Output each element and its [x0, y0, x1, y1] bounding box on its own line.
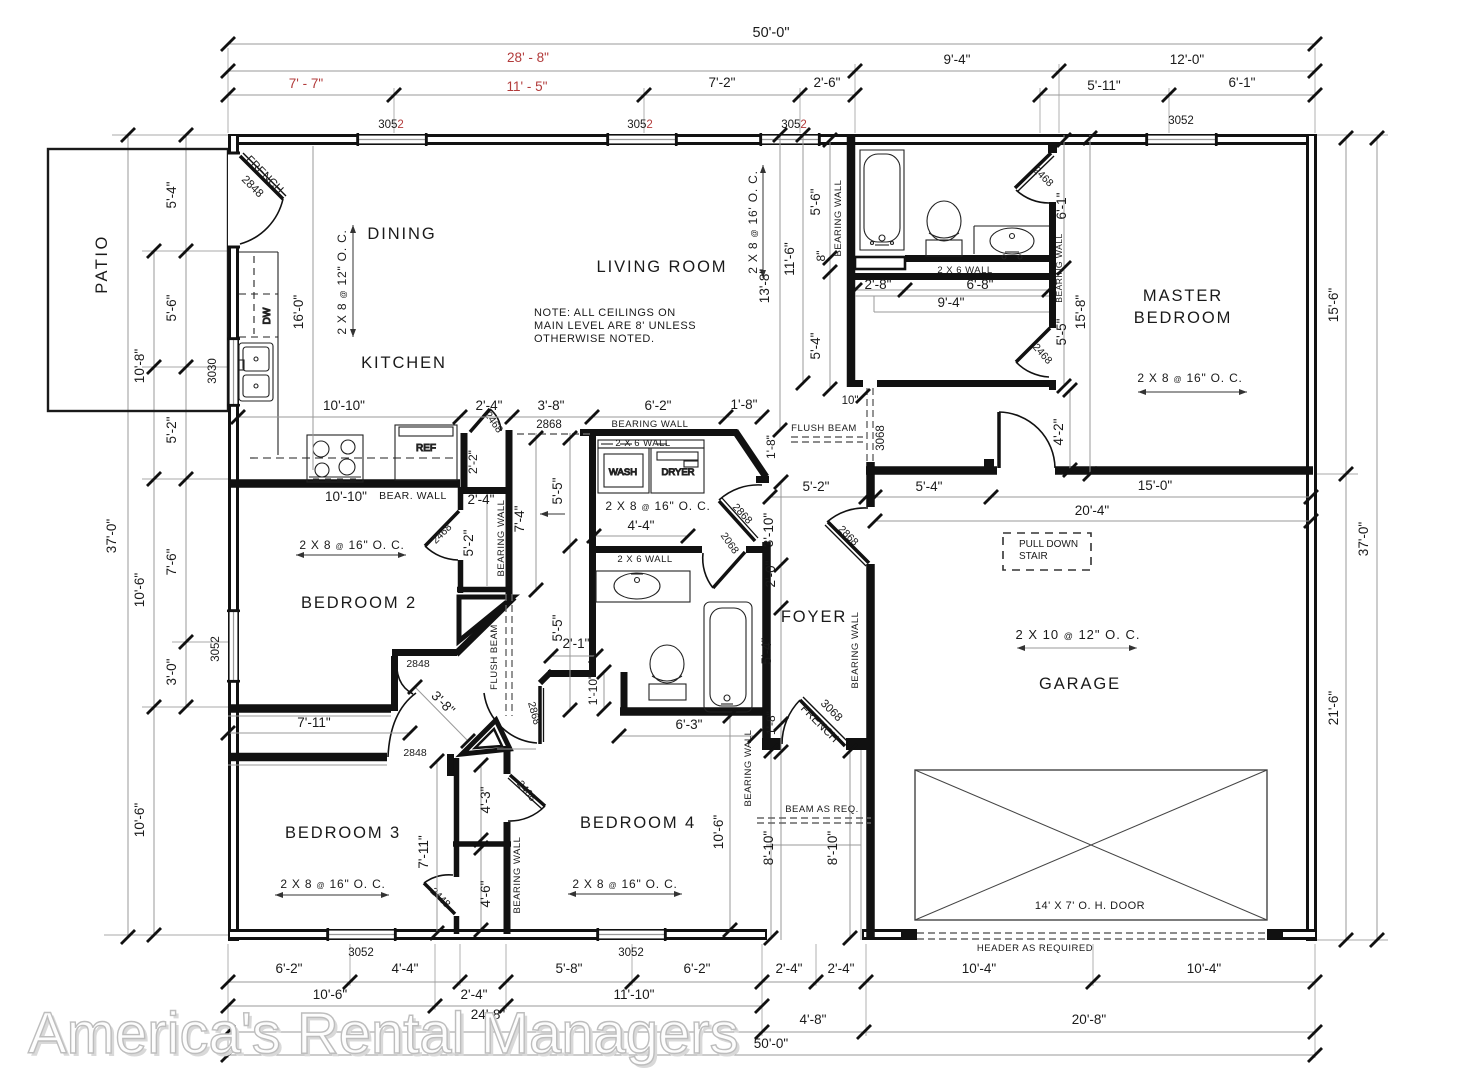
svg-text:15'-6": 15'-6": [1326, 288, 1341, 323]
svg-text:1'-8": 1'-8": [764, 711, 778, 735]
svg-text:8": 8": [814, 251, 828, 262]
svg-text:LIVING ROOM: LIVING ROOM: [597, 258, 728, 276]
svg-text:DW: DW: [262, 307, 273, 324]
svg-text:KITCHEN: KITCHEN: [361, 354, 447, 372]
svg-text:2'-4": 2'-4": [828, 961, 855, 976]
svg-text:3068: 3068: [875, 425, 887, 451]
svg-text:2 X 6 WALL: 2 X 6 WALL: [617, 554, 672, 565]
svg-text:11' - 5": 11' - 5": [507, 79, 548, 94]
svg-text:6'-8": 6'-8": [967, 277, 994, 292]
svg-text:2'-4": 2'-4": [776, 961, 803, 976]
svg-text:6'-1": 6'-1": [1229, 75, 1256, 90]
svg-text:21'-6": 21'-6": [1326, 691, 1341, 726]
svg-text:10'-6": 10'-6": [132, 803, 147, 838]
svg-text:5'-6": 5'-6": [164, 294, 179, 321]
svg-text:10'-10": 10'-10": [323, 398, 365, 413]
svg-text:6'-2": 6'-2": [645, 398, 672, 413]
svg-text:5'-11": 5'-11": [1087, 78, 1121, 93]
svg-text:9'-4": 9'-4": [944, 52, 971, 67]
svg-text:BEAM AS REQ.: BEAM AS REQ.: [785, 804, 859, 815]
svg-text:3052: 3052: [348, 947, 374, 959]
svg-text:16'-0": 16'-0": [291, 295, 306, 330]
svg-text:7'-11": 7'-11": [416, 835, 431, 869]
svg-text:2 X 8 @ 16" O. C.: 2 X 8 @ 16" O. C.: [605, 499, 710, 513]
svg-text:2 X 8 @ 12" O. C.: 2 X 8 @ 12" O. C.: [335, 229, 349, 334]
svg-text:5'-6": 5'-6": [808, 188, 823, 215]
svg-text:2'-6": 2'-6": [814, 75, 841, 90]
svg-text:DRYER: DRYER: [661, 467, 694, 478]
svg-text:4'-8": 4'-8": [800, 1012, 827, 1027]
svg-text:NOTE: ALL CEILINGS ON: NOTE: ALL CEILINGS ON: [534, 307, 676, 319]
svg-text:5'-2": 5'-2": [461, 529, 476, 556]
svg-text:12'-0": 12'-0": [1170, 52, 1205, 67]
svg-text:9'-4": 9'-4": [938, 295, 965, 310]
svg-text:2 X 8 @ 16' O. C.: 2 X 8 @ 16' O. C.: [746, 170, 760, 273]
svg-text:2468: 2468: [1030, 341, 1055, 367]
svg-text:7'-11": 7'-11": [297, 715, 331, 730]
svg-text:3'-0": 3'-0": [164, 658, 179, 685]
svg-text:5'-5": 5'-5": [550, 477, 565, 504]
svg-text:13'-8": 13'-8": [757, 269, 772, 304]
svg-text:15'-8": 15'-8": [1073, 295, 1088, 330]
svg-text:3052: 3052: [210, 636, 222, 662]
svg-text:10'-10": 10'-10": [325, 489, 367, 504]
svg-text:6'-1": 6'-1": [1054, 192, 1069, 219]
svg-text:28' - 8": 28' - 8": [507, 50, 549, 65]
svg-text:2868: 2868: [836, 523, 861, 548]
svg-text:20'-8": 20'-8": [1072, 1012, 1107, 1027]
svg-text:1'-8": 1'-8": [764, 435, 778, 459]
svg-text:10'-4": 10'-4": [1187, 961, 1222, 976]
svg-text:REF: REF: [416, 443, 436, 454]
svg-text:11'-6": 11'-6": [782, 242, 797, 276]
svg-text:2 X 6 WALL: 2 X 6 WALL: [937, 265, 992, 276]
svg-text:2868: 2868: [536, 419, 562, 431]
svg-text:37'-0": 37'-0": [104, 519, 119, 554]
svg-text:STAIR: STAIR: [1019, 551, 1048, 562]
svg-text:2'-2": 2'-2": [466, 450, 480, 474]
svg-text:5'-4": 5'-4": [916, 479, 943, 494]
svg-text:3052: 3052: [627, 119, 653, 131]
svg-text:50'-0": 50'-0": [754, 1036, 789, 1051]
svg-text:4'-2": 4'-2": [1051, 418, 1066, 445]
svg-text:7'-6": 7'-6": [164, 548, 179, 575]
svg-text:BEAR. WALL: BEAR. WALL: [379, 490, 447, 502]
svg-text:2468: 2468: [429, 521, 454, 546]
svg-text:14' X 7' O. H. DOOR: 14' X 7' O. H. DOOR: [1035, 900, 1145, 912]
svg-text:2848: 2848: [406, 658, 430, 670]
svg-text:OTHERWISE NOTED.: OTHERWISE NOTED.: [534, 333, 655, 345]
svg-text:BEDROOM 4: BEDROOM 4: [580, 814, 696, 832]
svg-text:BEDROOM 2: BEDROOM 2: [301, 594, 417, 612]
svg-text:2 X 8 @ 16" O. C.: 2 X 8 @ 16" O. C.: [299, 538, 404, 552]
svg-text:MAIN LEVEL ARE 8' UNLESS: MAIN LEVEL ARE 8' UNLESS: [534, 320, 696, 332]
svg-text:20'-4": 20'-4": [1075, 503, 1110, 518]
svg-text:BEARING WALL: BEARING WALL: [496, 500, 507, 577]
svg-text:2 X 6 WALL: 2 X 6 WALL: [615, 438, 670, 449]
svg-text:15'-0": 15'-0": [1138, 478, 1173, 493]
svg-text:FLUSH BEAM: FLUSH BEAM: [791, 423, 857, 434]
svg-text:4'-3": 4'-3": [478, 786, 493, 813]
svg-text:BEARING WALL: BEARING WALL: [612, 419, 689, 430]
svg-text:7'-2": 7'-2": [709, 75, 736, 90]
svg-text:8'-10": 8'-10": [825, 831, 840, 866]
svg-text:PATIO: PATIO: [93, 234, 111, 294]
svg-text:WASH: WASH: [609, 467, 637, 478]
svg-text:5'-2": 5'-2": [803, 479, 830, 494]
svg-text:GARAGE: GARAGE: [1039, 675, 1121, 693]
svg-text:2 X 8 @ 16" O. C.: 2 X 8 @ 16" O. C.: [1137, 371, 1242, 385]
svg-text:HEADER AS REQUIRED: HEADER AS REQUIRED: [977, 943, 1093, 954]
svg-text:8'-10": 8'-10": [761, 831, 776, 866]
svg-text:3'-8": 3'-8": [428, 688, 458, 718]
svg-text:BEARING WALL: BEARING WALL: [1054, 233, 1064, 302]
svg-text:7'-4": 7'-4": [512, 505, 527, 532]
svg-text:6'-2": 6'-2": [684, 961, 711, 976]
svg-text:10'-6": 10'-6": [132, 573, 147, 608]
svg-text:3030: 3030: [207, 358, 219, 384]
svg-text:10'-6": 10'-6": [711, 815, 726, 850]
svg-text:5'-4": 5'-4": [808, 332, 823, 359]
svg-text:2 X 8 @ 16" O. C.: 2 X 8 @ 16" O. C.: [280, 877, 385, 891]
svg-text:3052: 3052: [1168, 115, 1194, 127]
svg-text:37'-0": 37'-0": [1356, 522, 1371, 557]
svg-text:DINING: DINING: [367, 225, 436, 243]
svg-text:3'-10": 3'-10": [761, 513, 776, 548]
svg-text:5'-4": 5'-4": [164, 181, 179, 208]
svg-text:BEARING WALL: BEARING WALL: [743, 730, 754, 807]
svg-text:10'-8": 10'-8": [132, 349, 147, 384]
svg-text:2868: 2868: [730, 501, 755, 526]
svg-text:MASTER: MASTER: [1143, 287, 1223, 305]
svg-text:3052: 3052: [618, 947, 644, 959]
svg-text:BEARING WALL: BEARING WALL: [850, 612, 861, 689]
svg-text:2'-4": 2'-4": [476, 398, 503, 413]
svg-text:FOYER: FOYER: [781, 608, 847, 626]
svg-text:6'-2": 6'-2": [276, 961, 303, 976]
svg-text:5'-2": 5'-2": [164, 416, 179, 443]
svg-text:2'-8": 2'-8": [865, 277, 892, 292]
svg-text:4'-4": 4'-4": [628, 518, 655, 533]
svg-text:3052: 3052: [378, 119, 404, 131]
svg-text:BEDROOM: BEDROOM: [1134, 309, 1233, 327]
svg-text:50'-0": 50'-0": [753, 25, 790, 41]
svg-text:2'-4": 2'-4": [468, 492, 495, 507]
svg-text:6'-3": 6'-3": [676, 717, 703, 732]
svg-text:10": 10": [842, 395, 859, 407]
svg-text:4'-4": 4'-4": [392, 961, 419, 976]
svg-text:10'-4": 10'-4": [962, 961, 997, 976]
svg-text:1'-8": 1'-8": [731, 397, 758, 412]
svg-text:2'-1": 2'-1": [563, 636, 590, 651]
svg-text:5'-8": 5'-8": [556, 961, 583, 976]
svg-text:4'-6": 4'-6": [478, 880, 493, 907]
svg-text:2468: 2468: [514, 778, 538, 804]
svg-text:2468: 2468: [482, 409, 505, 435]
svg-text:5'-5": 5'-5": [1054, 318, 1069, 345]
svg-text:BEDROOM 3: BEDROOM 3: [285, 824, 401, 842]
svg-text:BEARING WALL: BEARING WALL: [512, 837, 523, 914]
svg-text:7' - 7": 7' - 7": [289, 76, 324, 91]
svg-text:2468: 2468: [1031, 164, 1056, 189]
svg-text:2848: 2848: [403, 747, 427, 759]
svg-text:2 X 10 @ 12" O. C.: 2 X 10 @ 12" O. C.: [1016, 627, 1141, 642]
svg-text:2068: 2068: [718, 530, 741, 556]
svg-text:PULL DOWN: PULL DOWN: [1019, 539, 1078, 550]
svg-text:2'-0": 2'-0": [763, 560, 778, 587]
svg-text:FLUSH BEAM: FLUSH BEAM: [489, 624, 500, 690]
svg-text:2 X 8 @ 16" O. C.: 2 X 8 @ 16" O. C.: [572, 877, 677, 891]
svg-text:5'-4": 5'-4": [759, 637, 774, 664]
svg-text:BEARING WALL: BEARING WALL: [833, 180, 844, 257]
svg-text:3'-8": 3'-8": [538, 398, 565, 413]
